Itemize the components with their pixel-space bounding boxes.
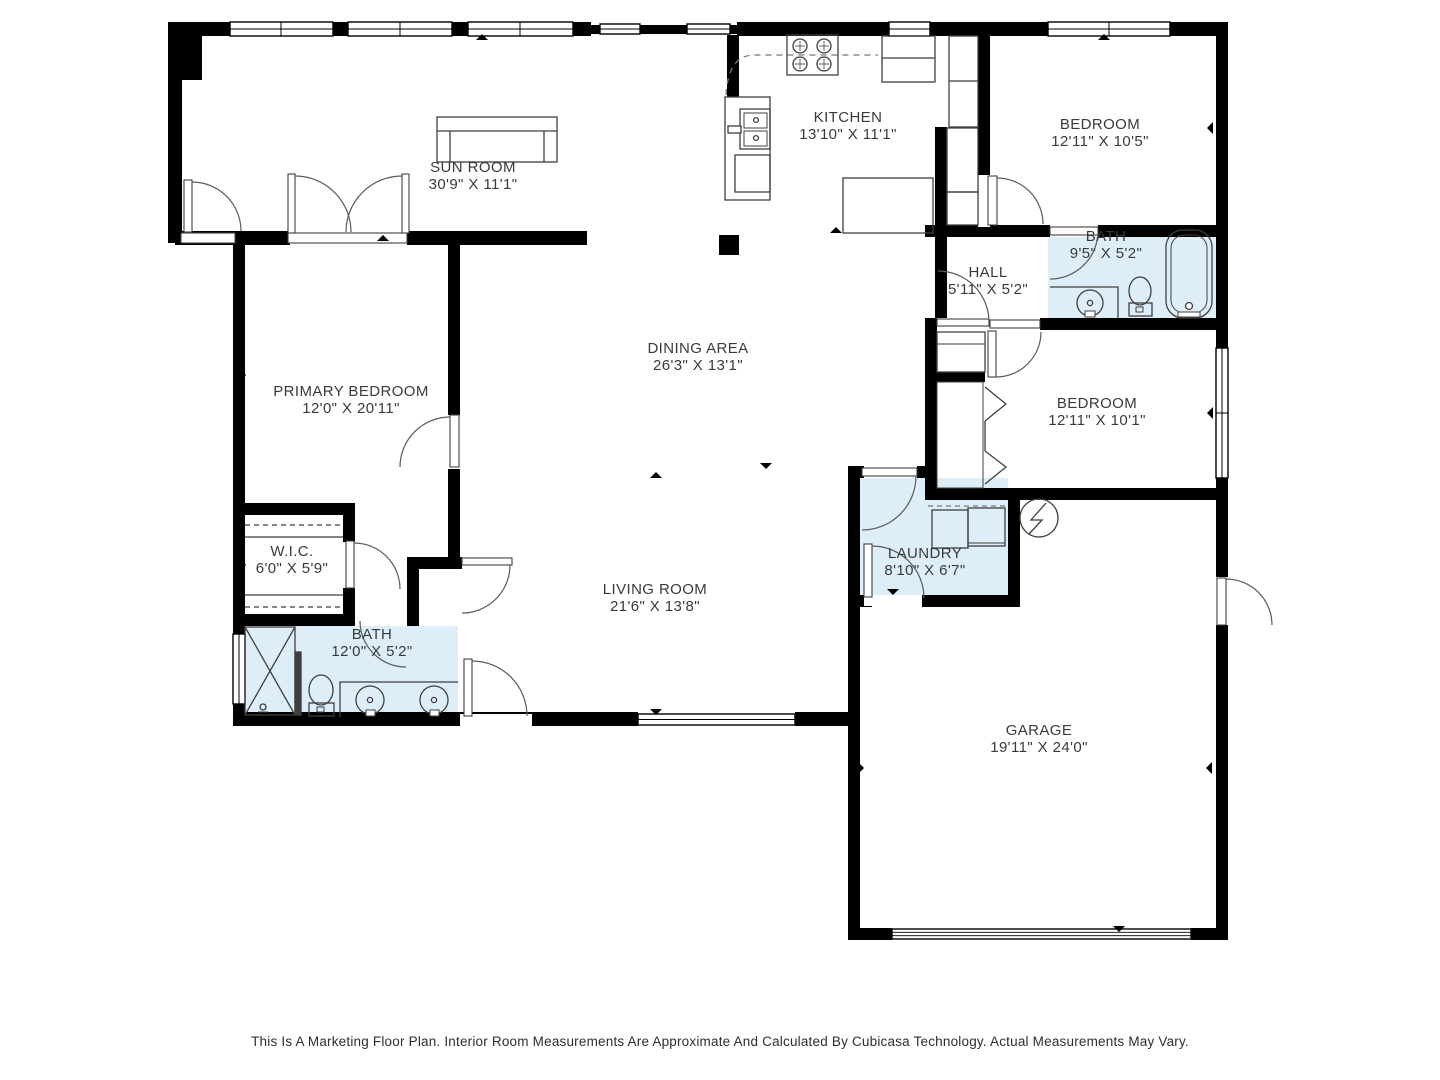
kitchen-sink-icon xyxy=(728,109,770,149)
room-label-bedroom-right: BEDROOM 12'11" X 10'1" xyxy=(1048,395,1146,429)
refrigerator-icon xyxy=(882,36,935,82)
room-label-bedroom-top: BEDROOM 12'11" X 10'5" xyxy=(1051,116,1149,150)
walls xyxy=(168,22,1228,940)
door-leaf xyxy=(184,180,192,232)
room-label-laundry: LAUNDRY 8'10" X 6'7" xyxy=(884,545,965,579)
room-label-bath-top: BATH 9'5" X 5'2" xyxy=(1070,228,1143,262)
dimension-markers xyxy=(240,34,1213,932)
bedroom-top-window-icon xyxy=(1048,22,1170,36)
water-heater-icon xyxy=(1020,499,1058,537)
room-label-kitchen: KITCHEN 13'10" X 11'1" xyxy=(799,109,897,143)
pantry-cabinets-icon xyxy=(947,36,978,225)
windows xyxy=(230,22,1228,939)
floor-plan-page: SUN ROOM 30'9" X 11'1" KITCHEN 13'10" X … xyxy=(0,0,1440,1080)
dishwasher-icon xyxy=(735,155,770,192)
floor-plan-drawing xyxy=(0,0,1440,1080)
bedroom-right-window-icon xyxy=(1216,348,1228,478)
disclaimer-text: This Is A Marketing Floor Plan. Interior… xyxy=(0,1034,1440,1049)
room-label-wic: W.I.C. 6'0" X 5'9" xyxy=(256,543,329,577)
living-room-window-icon xyxy=(638,714,795,725)
room-label-living-room: LIVING ROOM 21'6" X 13'8" xyxy=(603,581,707,615)
room-label-hall: HALL 5'11" X 5'2" xyxy=(948,264,1028,298)
bath-left-window-icon xyxy=(233,634,245,704)
sofa-icon xyxy=(437,117,557,162)
garage-door-icon xyxy=(892,929,1191,939)
room-label-primary-bedroom: PRIMARY BEDROOM 12'0" X 20'11" xyxy=(273,383,428,417)
room-label-dining-area: DINING AREA 26'3" X 13'1" xyxy=(647,340,748,374)
room-label-garage: GARAGE 19'11" X 24'0" xyxy=(990,722,1088,756)
kitchen-island-icon xyxy=(843,178,933,233)
room-label-sun-room: SUN ROOM 30'9" X 11'1" xyxy=(429,159,518,193)
room-label-bath-left: BATH 12'0" X 5'2" xyxy=(331,626,412,660)
kitchen-window-icon xyxy=(889,22,930,36)
